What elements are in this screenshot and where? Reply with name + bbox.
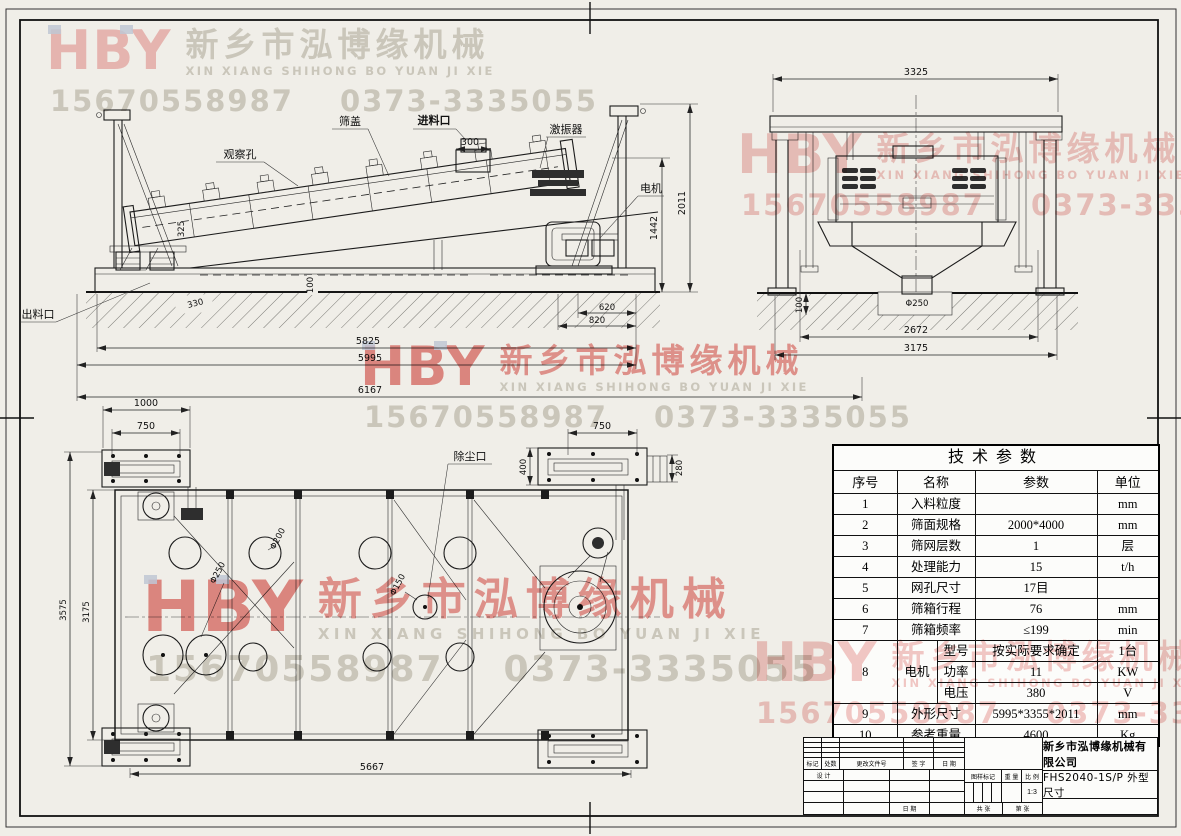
label-design: 设 计 [804, 770, 844, 781]
dim-325: 325 [177, 221, 187, 237]
left-support-tower [97, 110, 187, 270]
cell-value: ≤199 [975, 620, 1097, 641]
cell-value: 17目 [975, 578, 1097, 599]
screen-box-end [818, 146, 1016, 278]
plan-view-dimensions: 1000 750 750 400 280 3575 3175 5667 Φ250 [59, 398, 685, 778]
cell-no: 5 [833, 578, 897, 599]
exciter-unit [530, 170, 586, 196]
table-row: 4处理能力15t/h [833, 557, 1159, 578]
plan-body [115, 487, 660, 740]
label-mark: 标记 [804, 758, 822, 770]
cell-name: 网孔尺寸 [897, 578, 975, 599]
drawing-sheet: 观察孔 筛盖 进料口 300 激振器 电机 出料口 1442 2011 620 [0, 0, 1181, 836]
cell-sub: 电压 [937, 683, 975, 704]
table-header-row: 序号 名称 参数 单位 [833, 471, 1159, 494]
table-title: 技术参数 [833, 445, 1159, 471]
dim-400: 400 [519, 459, 529, 475]
plate-bottom-right [538, 730, 647, 768]
edge-clamps [226, 490, 549, 740]
cell-name: 筛箱频率 [897, 620, 975, 641]
col-header-name: 名称 [897, 471, 975, 494]
cell-unit: V [1097, 683, 1159, 704]
cell-value: 按实际要求确定 [975, 641, 1097, 662]
dim-300: 300 [461, 137, 479, 148]
cell-name: 筛箱行程 [897, 599, 975, 620]
table-row: 3筛网层数1层 [833, 536, 1159, 557]
cell-unit: mm [1097, 599, 1159, 620]
dust-port-label: 除尘口 [454, 449, 487, 463]
end-view: Φ250 3325 100 2672 3175 [645, 55, 1090, 370]
dim-phi250-end: Φ250 [906, 299, 929, 309]
outlet-pit: Φ250 [878, 276, 952, 315]
revision-grid: 标记 处数 更改文件号 签 字 日 期 设 计 日 期 [804, 738, 965, 814]
technical-parameters-table: 技术参数 序号 名称 参数 单位 1入料粒度mm 2筛面规格2000*4000m… [832, 444, 1160, 747]
drawing-number: FHS2040-1S/P 外型尺寸 [1043, 771, 1157, 799]
table-row-motor: 8 电机 型号按实际要求确定1台 [833, 641, 1159, 662]
dim-3325: 3325 [904, 67, 928, 78]
cell-no: 9 [833, 704, 897, 725]
label-count: 处数 [822, 758, 840, 770]
motor-unit [536, 222, 612, 274]
cell-unit: min [1097, 620, 1159, 641]
cell-name: 外形尺寸 [897, 704, 975, 725]
cell-unit: mm [1097, 515, 1159, 536]
cell-unit: mm [1097, 704, 1159, 725]
dim-2672: 2672 [904, 325, 928, 336]
feed-inlet-label: 进料口 [418, 113, 451, 127]
observation-hole-label: 观察孔 [224, 147, 257, 161]
cell-name: 处理能力 [897, 557, 975, 578]
dim-5667: 5667 [360, 762, 384, 773]
label-signature: 签 字 [904, 758, 934, 770]
cell-sub: 型号 [937, 641, 975, 662]
label-change-file: 更改文件号 [840, 758, 904, 770]
label-scale: 比 例 [1022, 770, 1042, 783]
ground [86, 292, 660, 328]
cell-name: 筛网层数 [897, 536, 975, 557]
cell-name: 筛面规格 [897, 515, 975, 536]
cell-unit: 层 [1097, 536, 1159, 557]
table-row: 7筛箱频率≤199min [833, 620, 1159, 641]
cell-no: 2 [833, 515, 897, 536]
plan-view: 1000 750 750 400 280 3575 3175 5667 Φ250 [45, 385, 725, 785]
col-header-no: 序号 [833, 471, 897, 494]
dim-3575: 3575 [59, 599, 69, 621]
cell-value: 5995*3355*2011 [975, 704, 1097, 725]
drive-unit [540, 528, 616, 650]
label-date: 日 期 [934, 758, 964, 770]
table-row: 2筛面规格2000*4000mm [833, 515, 1159, 536]
cell-value [975, 494, 1097, 515]
dim-750-left: 750 [137, 421, 155, 432]
cell-no: 6 [833, 599, 897, 620]
table-row: 6筛箱行程76mm [833, 599, 1159, 620]
dim-5825: 5825 [356, 336, 380, 347]
dim-1000: 1000 [134, 398, 158, 409]
cell-unit: t/h [1097, 557, 1159, 578]
cell-value: 15 [975, 557, 1097, 578]
cell-no: 4 [833, 557, 897, 578]
dim-100: 100 [306, 277, 316, 293]
cell-value: 76 [975, 599, 1097, 620]
dim-phi250-plan: Φ250 [208, 561, 228, 586]
label-date2: 日 期 [890, 803, 930, 814]
exciter-label: 激振器 [550, 122, 583, 136]
cell-value: 2000*4000 [975, 515, 1097, 536]
screen-box [122, 131, 579, 253]
table-row: 9外形尺寸5995*3355*2011mm [833, 704, 1159, 725]
dim-750-right: 750 [593, 421, 611, 432]
cell-sub: 功率 [937, 662, 975, 683]
dim-3175-plan: 3175 [82, 601, 92, 623]
cell-no: 1 [833, 494, 897, 515]
cell-no: 3 [833, 536, 897, 557]
cell-name-motor: 电机 [897, 641, 937, 704]
cell-no: 8 [833, 641, 897, 704]
col-header-unit: 单位 [1097, 471, 1159, 494]
label-sheet-no: 第 张 [1003, 803, 1042, 814]
side-view-labels: 观察孔 筛盖 进料口 300 激振器 电机 出料口 [20, 113, 664, 322]
scale-grid: 图样标记 重 量 比 例 1:3 共 张 第 张 [965, 738, 1043, 814]
cell-unit: 1台 [1097, 641, 1159, 662]
title-area: 新乡市泓博缘机械有限公司 FHS2040-1S/P 外型尺寸 [1043, 738, 1157, 814]
scale-value: 1:3 [1022, 783, 1042, 803]
label-drawing-mark: 图样标记 [965, 770, 1002, 783]
cell-value: 380 [975, 683, 1097, 704]
company-name: 新乡市泓博缘机械有限公司 [1043, 738, 1157, 771]
plate-top-left [102, 450, 190, 487]
dim-5995: 5995 [358, 353, 382, 364]
plate-top-right [538, 448, 667, 540]
label-sheets: 共 张 [965, 803, 1003, 814]
dim-820: 820 [589, 316, 605, 326]
dim-3175-end: 3175 [904, 343, 928, 354]
cell-unit: KW [1097, 662, 1159, 683]
dim-phi150-plan: Φ150 [388, 573, 408, 598]
cell-unit [1097, 578, 1159, 599]
cell-unit: mm [1097, 494, 1159, 515]
col-header-value: 参数 [975, 471, 1097, 494]
cell-value: 1 [975, 536, 1097, 557]
table-row: 5网孔尺寸17目 [833, 578, 1159, 599]
cell-name: 入料粒度 [897, 494, 975, 515]
dim-280: 280 [675, 460, 685, 476]
title-block: 标记 处数 更改文件号 签 字 日 期 设 计 日 期 图样标记 重 量 比 例 [803, 737, 1158, 815]
label-weight: 重 量 [1002, 770, 1022, 783]
table-row: 1入料粒度mm [833, 494, 1159, 515]
spring-stacks [842, 168, 986, 189]
dim-620: 620 [599, 303, 615, 313]
panel-dividers [228, 496, 472, 734]
discharge-outlet-label: 出料口 [22, 307, 55, 321]
cell-value: 11 [975, 662, 1097, 683]
cell-no: 7 [833, 620, 897, 641]
table-title-row: 技术参数 [833, 445, 1159, 471]
screen-cover-label: 筛盖 [339, 114, 361, 128]
